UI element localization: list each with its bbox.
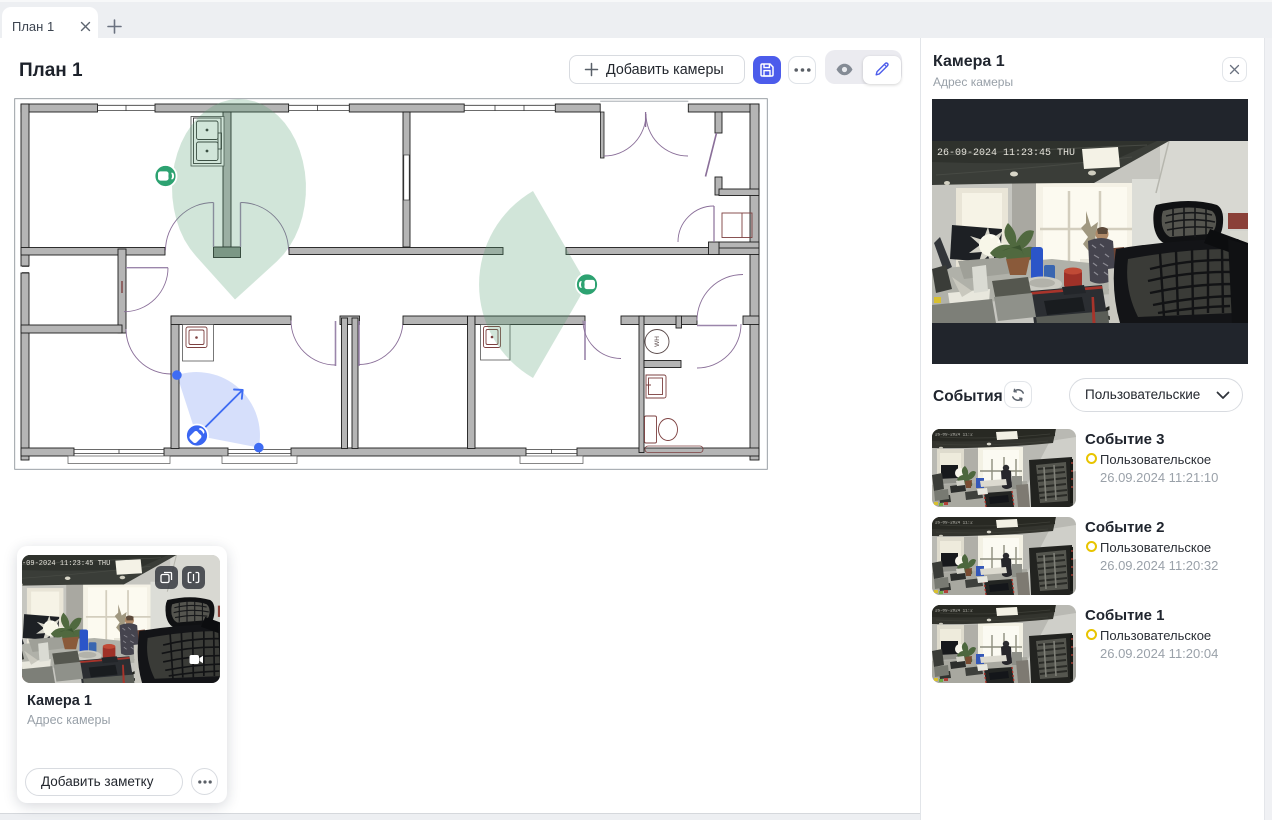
svg-text:WH: WH — [654, 336, 661, 347]
